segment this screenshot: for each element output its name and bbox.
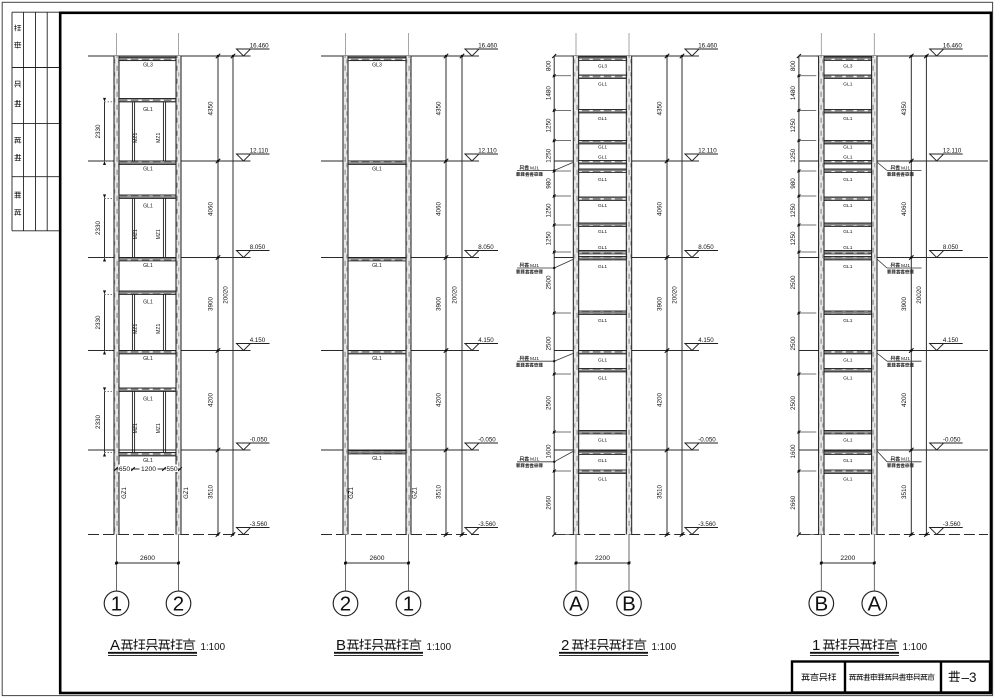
svg-text:B: B <box>622 593 636 616</box>
svg-text:GZ1: GZ1 <box>349 487 355 499</box>
svg-text:GL1: GL1 <box>598 358 608 364</box>
svg-text:GL1: GL1 <box>843 318 853 324</box>
svg-text:GL1: GL1 <box>598 245 608 251</box>
svg-text:1250: 1250 <box>790 231 797 246</box>
svg-text:2500: 2500 <box>790 336 797 351</box>
svg-text:MJ1: MJ1 <box>530 457 539 463</box>
svg-text:550: 550 <box>166 466 177 473</box>
svg-text:1250: 1250 <box>790 148 797 163</box>
svg-text:GL1: GL1 <box>598 376 608 382</box>
svg-text:1250: 1250 <box>545 231 552 246</box>
svg-text:980: 980 <box>545 178 552 189</box>
svg-text:1250: 1250 <box>545 203 552 218</box>
svg-text:GL3: GL3 <box>598 64 608 70</box>
svg-text:2330: 2330 <box>95 315 102 330</box>
svg-text:MZ1: MZ1 <box>156 229 162 239</box>
svg-text:20020: 20020 <box>916 286 923 304</box>
svg-text:GL1: GL1 <box>598 155 608 161</box>
svg-text:GL1: GL1 <box>598 264 608 270</box>
svg-text:GL1: GL1 <box>372 167 382 173</box>
svg-text:GL1: GL1 <box>598 145 608 151</box>
svg-text:2330: 2330 <box>95 414 102 429</box>
svg-text:4060: 4060 <box>901 202 908 217</box>
svg-text:1200: 1200 <box>141 466 156 473</box>
svg-text:1250: 1250 <box>790 118 797 133</box>
svg-text:20020: 20020 <box>672 286 679 304</box>
svg-text:4060: 4060 <box>436 202 443 217</box>
svg-text:MJ1: MJ1 <box>530 263 539 269</box>
svg-text:800: 800 <box>545 60 552 71</box>
svg-text:4200: 4200 <box>901 393 908 408</box>
svg-text:1:100: 1:100 <box>652 642 677 653</box>
svg-text:GL1: GL1 <box>843 477 853 483</box>
svg-text:MJ1: MJ1 <box>901 165 910 171</box>
svg-text:GL1: GL1 <box>843 203 853 209</box>
svg-text:-0.050: -0.050 <box>250 436 268 443</box>
svg-text:MZ1: MZ1 <box>133 229 139 239</box>
svg-text:3900: 3900 <box>657 297 664 312</box>
svg-text:2: 2 <box>561 637 569 654</box>
svg-text:2200: 2200 <box>840 555 855 562</box>
svg-text:GL1: GL1 <box>843 245 853 251</box>
svg-text:1:100: 1:100 <box>903 642 928 653</box>
svg-text:GZ1: GZ1 <box>184 487 190 499</box>
svg-text:8.050: 8.050 <box>698 244 714 251</box>
svg-text:-3.560: -3.560 <box>250 521 268 528</box>
svg-text:12.110: 12.110 <box>250 147 269 154</box>
svg-text:GL1: GL1 <box>143 397 153 403</box>
svg-text:4060: 4060 <box>208 202 215 217</box>
svg-text:4200: 4200 <box>657 393 664 408</box>
svg-text:GL1: GL1 <box>143 458 153 464</box>
svg-text:GL1: GL1 <box>843 155 853 161</box>
svg-text:2500: 2500 <box>545 336 552 351</box>
svg-text:MZ1: MZ1 <box>156 423 162 433</box>
svg-text:GL1: GL1 <box>843 229 853 235</box>
svg-text:-3.560: -3.560 <box>478 521 496 528</box>
svg-text:1600: 1600 <box>545 444 552 459</box>
svg-text:MJ1: MJ1 <box>530 356 539 362</box>
svg-text:2600: 2600 <box>370 555 385 562</box>
svg-text:2500: 2500 <box>790 275 797 290</box>
svg-text:3510: 3510 <box>208 485 215 500</box>
svg-text:8.050: 8.050 <box>943 244 959 251</box>
svg-text:GL3: GL3 <box>843 64 853 70</box>
svg-text:20020: 20020 <box>452 286 459 304</box>
svg-text:GL1: GL1 <box>843 438 853 444</box>
svg-text:GL1: GL1 <box>843 376 853 382</box>
svg-text:GL1: GL1 <box>598 438 608 444</box>
svg-text:MJ1: MJ1 <box>530 165 539 171</box>
svg-text:GL1: GL1 <box>143 300 153 306</box>
svg-text:2330: 2330 <box>95 220 102 235</box>
svg-text:1: 1 <box>403 593 414 616</box>
svg-text:980: 980 <box>790 178 797 189</box>
svg-text:-3.560: -3.560 <box>698 521 716 528</box>
svg-text:GL1: GL1 <box>598 477 608 483</box>
svg-text:16.460: 16.460 <box>478 42 497 49</box>
svg-text:1250: 1250 <box>545 148 552 163</box>
svg-text:12.110: 12.110 <box>478 147 497 154</box>
svg-text:4350: 4350 <box>208 101 215 116</box>
svg-text:GL1: GL1 <box>598 229 608 235</box>
svg-text:20020: 20020 <box>223 286 230 304</box>
svg-text:GL1: GL1 <box>143 204 153 210</box>
svg-text:2660: 2660 <box>790 495 797 510</box>
svg-text:650: 650 <box>119 466 130 473</box>
svg-text:GL1: GL1 <box>372 263 382 269</box>
svg-text:MZ1: MZ1 <box>156 133 162 143</box>
svg-text:A: A <box>110 637 120 654</box>
svg-text:MJ1: MJ1 <box>901 263 910 269</box>
svg-text:GL1: GL1 <box>843 264 853 270</box>
svg-text:GL1: GL1 <box>843 358 853 364</box>
svg-text:GL3: GL3 <box>372 63 382 69</box>
svg-text:1: 1 <box>111 593 122 616</box>
svg-text:GZ1: GZ1 <box>413 487 419 499</box>
svg-text:GL1: GL1 <box>143 107 153 113</box>
svg-text:4350: 4350 <box>901 101 908 116</box>
svg-text:-0.050: -0.050 <box>478 436 496 443</box>
svg-text:4060: 4060 <box>657 202 664 217</box>
svg-text:MZ1: MZ1 <box>156 324 162 334</box>
svg-text:2200: 2200 <box>595 555 610 562</box>
svg-text:B: B <box>336 637 346 654</box>
svg-text:2600: 2600 <box>140 555 155 562</box>
svg-text:GL1: GL1 <box>598 116 608 122</box>
svg-text:4200: 4200 <box>436 393 443 408</box>
svg-text:-0.050: -0.050 <box>943 436 961 443</box>
svg-text:4200: 4200 <box>208 393 215 408</box>
svg-text:16.460: 16.460 <box>943 42 962 49</box>
svg-text:1250: 1250 <box>790 203 797 218</box>
svg-text:1:100: 1:100 <box>201 642 226 653</box>
svg-text:2500: 2500 <box>790 396 797 411</box>
svg-text:2500: 2500 <box>545 396 552 411</box>
svg-text:4350: 4350 <box>436 101 443 116</box>
svg-text:1250: 1250 <box>545 118 552 133</box>
svg-text:GL1: GL1 <box>143 356 153 362</box>
svg-text:MZ1: MZ1 <box>133 133 139 143</box>
svg-text:GL3: GL3 <box>143 63 153 69</box>
svg-text:1: 1 <box>812 637 820 654</box>
svg-text:GL1: GL1 <box>372 456 382 462</box>
svg-text:GL1: GL1 <box>598 318 608 324</box>
svg-text:-0.050: -0.050 <box>698 436 716 443</box>
svg-text:GL1: GL1 <box>598 203 608 209</box>
svg-text:12.110: 12.110 <box>698 147 717 154</box>
svg-text:16.460: 16.460 <box>250 42 269 49</box>
svg-text:1480: 1480 <box>545 86 552 101</box>
svg-text:4.150: 4.150 <box>943 337 959 344</box>
svg-text:MZ1: MZ1 <box>133 423 139 433</box>
svg-text:GL1: GL1 <box>372 356 382 362</box>
svg-text:3510: 3510 <box>436 485 443 500</box>
svg-text:MZ1: MZ1 <box>133 324 139 334</box>
svg-text:–3: –3 <box>962 670 977 685</box>
svg-text:4.150: 4.150 <box>698 337 714 344</box>
svg-text:GL1: GL1 <box>143 263 153 269</box>
svg-text:3900: 3900 <box>208 297 215 312</box>
svg-text:GZ1: GZ1 <box>122 487 128 499</box>
svg-text:4.150: 4.150 <box>478 337 494 344</box>
svg-text:2500: 2500 <box>545 275 552 290</box>
svg-text:3510: 3510 <box>901 485 908 500</box>
svg-text:GL1: GL1 <box>843 116 853 122</box>
svg-text:MJ1: MJ1 <box>901 457 910 463</box>
svg-text:2: 2 <box>340 593 351 616</box>
svg-text:1600: 1600 <box>790 444 797 459</box>
svg-text:2660: 2660 <box>545 495 552 510</box>
svg-text:1480: 1480 <box>790 86 797 101</box>
svg-text:16.460: 16.460 <box>698 42 717 49</box>
svg-text:2330: 2330 <box>95 124 102 139</box>
svg-text:GL1: GL1 <box>598 177 608 183</box>
svg-text:GL1: GL1 <box>598 458 608 464</box>
svg-text:12.110: 12.110 <box>943 147 962 154</box>
svg-text:4.150: 4.150 <box>250 337 266 344</box>
svg-text:4350: 4350 <box>657 101 664 116</box>
svg-text:A: A <box>867 593 881 616</box>
svg-text:1:100: 1:100 <box>427 642 452 653</box>
svg-text:B: B <box>814 593 828 616</box>
svg-text:GL1: GL1 <box>843 82 853 88</box>
svg-text:MJ1: MJ1 <box>901 356 910 362</box>
svg-text:GL1: GL1 <box>843 177 853 183</box>
svg-text:2: 2 <box>173 593 184 616</box>
svg-text:A: A <box>569 593 583 616</box>
svg-text:3900: 3900 <box>436 297 443 312</box>
svg-text:800: 800 <box>790 60 797 71</box>
svg-text:-3.560: -3.560 <box>943 521 961 528</box>
svg-text:3510: 3510 <box>657 485 664 500</box>
svg-text:8.050: 8.050 <box>250 244 266 251</box>
svg-text:GL1: GL1 <box>143 167 153 173</box>
svg-text:GL1: GL1 <box>843 145 853 151</box>
svg-text:GL1: GL1 <box>843 458 853 464</box>
svg-text:8.050: 8.050 <box>478 244 494 251</box>
svg-text:GL1: GL1 <box>598 82 608 88</box>
svg-text:3900: 3900 <box>901 297 908 312</box>
